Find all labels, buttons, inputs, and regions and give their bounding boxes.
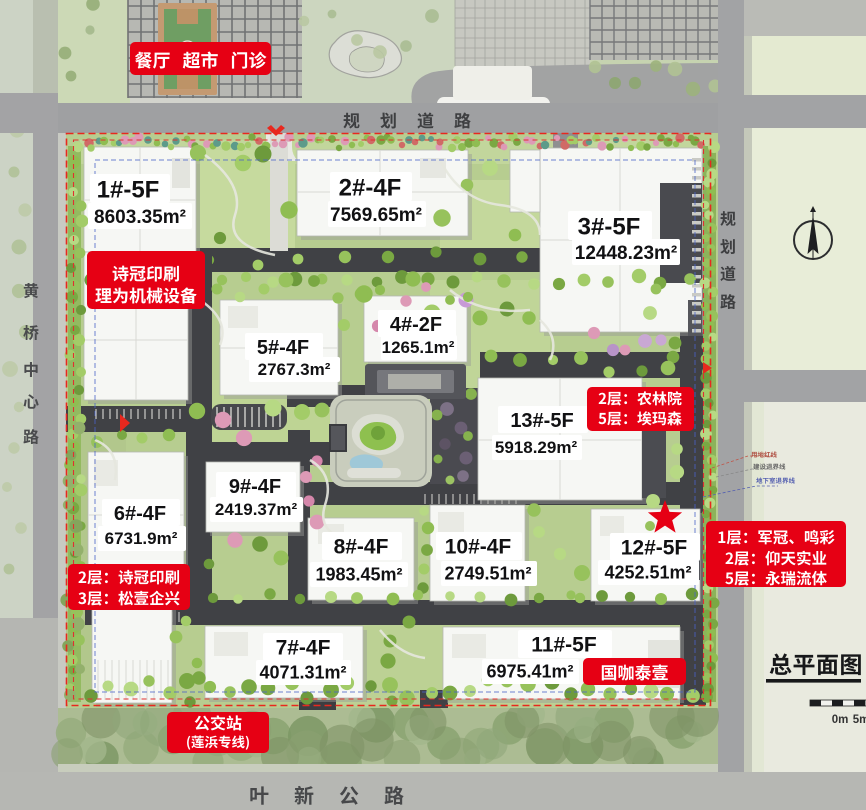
svg-text:7569.65m²: 7569.65m² <box>330 205 422 226</box>
svg-text:3#-5F: 3#-5F <box>578 214 641 241</box>
svg-text:0m: 0m <box>832 714 849 726</box>
svg-text:1#-5F: 1#-5F <box>97 177 160 204</box>
svg-text:8#-4F: 8#-4F <box>334 536 389 559</box>
svg-text:5918.29m²: 5918.29m² <box>495 438 578 457</box>
svg-text:5#-4F: 5#-4F <box>257 337 309 359</box>
svg-text:1265.1m²: 1265.1m² <box>382 338 455 357</box>
svg-text:4071.31m²: 4071.31m² <box>259 662 346 682</box>
svg-text:1983.45m²: 1983.45m² <box>315 564 402 584</box>
svg-text:8603.35m²: 8603.35m² <box>94 207 186 228</box>
svg-text:12448.23m²: 12448.23m² <box>575 243 677 264</box>
svg-text:4#-2F: 4#-2F <box>390 314 442 336</box>
svg-text:2767.3m²: 2767.3m² <box>258 360 331 379</box>
svg-text:10#-4F: 10#-4F <box>445 536 512 559</box>
svg-text:6975.41m²: 6975.41m² <box>486 661 573 681</box>
svg-text:2419.37m²: 2419.37m² <box>215 500 298 519</box>
svg-text:2749.51m²: 2749.51m² <box>444 563 531 583</box>
svg-text:6731.9m²: 6731.9m² <box>105 529 178 548</box>
svg-text:2#-4F: 2#-4F <box>339 175 402 202</box>
svg-text:11#-5F: 11#-5F <box>531 634 597 657</box>
svg-text:6#-4F: 6#-4F <box>114 503 166 525</box>
svg-text:7#-4F: 7#-4F <box>276 637 331 660</box>
svg-text:9#-4F: 9#-4F <box>229 476 281 498</box>
svg-text:4252.51m²: 4252.51m² <box>604 562 691 582</box>
svg-text:12#-5F: 12#-5F <box>621 537 688 560</box>
svg-text:13#-5F: 13#-5F <box>510 410 573 432</box>
svg-text:5m: 5m <box>853 714 866 726</box>
